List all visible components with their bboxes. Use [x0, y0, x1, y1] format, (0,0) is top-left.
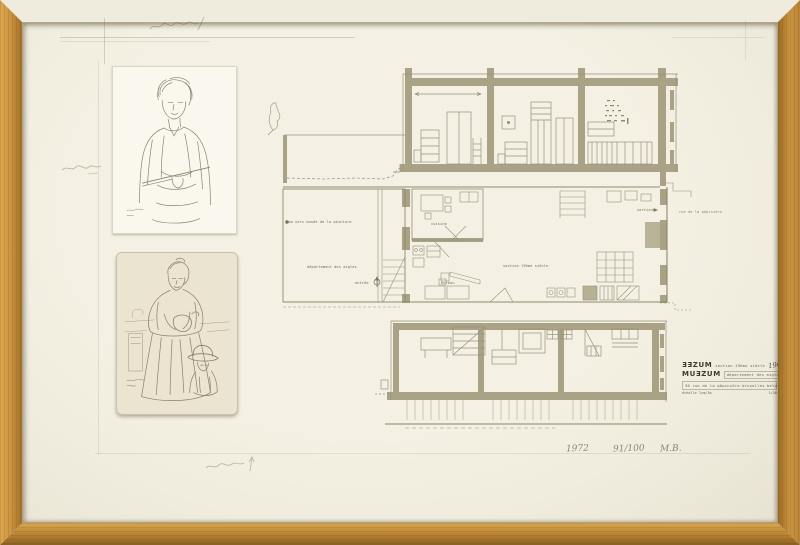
- label-sortie: sortie: [637, 208, 651, 212]
- pencil-annotation-left: [58, 158, 108, 182]
- title-departement-text: département des aigles: [724, 371, 785, 380]
- frame-left: [0, 0, 22, 545]
- title-scale: échelle 1cm/1m: [682, 391, 712, 395]
- pencil-annotation-bottom: [202, 454, 258, 476]
- guide-line-left: [104, 18, 105, 64]
- plan-drawing: vers musée de la peinture département de…: [255, 50, 725, 440]
- label-bureau: bureau: [441, 281, 455, 285]
- label-section-19: section 19ème siècle: [503, 264, 548, 268]
- signature-initials: M.B.: [660, 444, 682, 455]
- guide-line-left-long: [98, 60, 99, 455]
- frame-bottom: [0, 523, 800, 545]
- title-address: 30 rue de la pépinière bruxelles belgiqu…: [682, 381, 777, 390]
- architectural-plan: vers musée de la peinture département de…: [255, 50, 725, 440]
- portrait-card-man: [112, 66, 237, 234]
- portrait-woman-child-drawing: [117, 253, 237, 413]
- portrait-card-woman-child: [116, 252, 238, 415]
- label-rue-pepiniere: rue de la pépinière: [679, 210, 722, 214]
- label-departement-des-aigles: département des aigles: [307, 265, 357, 269]
- guide-line-top-right: [672, 37, 764, 38]
- title-ratio: 1/50: [769, 391, 777, 395]
- frame-top: [0, 0, 800, 22]
- framed-artwork-photo: vers musée de la peinture département de…: [0, 0, 800, 545]
- title-block: ƎƎZUM section 19ème siècle 1968 MUƎZUM d…: [682, 361, 777, 395]
- guide-line-top2: [60, 41, 210, 42]
- title-section-text: section 19ème siècle: [715, 364, 765, 369]
- guide-line-bottom: [95, 453, 750, 454]
- guide-line-right: [745, 20, 746, 60]
- label-cuisine: cuisine: [431, 222, 447, 226]
- frame-right: [778, 0, 800, 545]
- signature-year: 1972: [566, 444, 589, 455]
- label-entree: entrée: [355, 281, 369, 285]
- museum-logo-line2: MUƎZUM: [682, 370, 721, 379]
- portrait-man-drawing: [113, 67, 236, 232]
- label-vers-musee: vers musée de la peinture: [295, 220, 352, 224]
- signature-edition: 91/100: [613, 443, 645, 454]
- museum-logo-line1: ƎƎZUM: [682, 361, 712, 370]
